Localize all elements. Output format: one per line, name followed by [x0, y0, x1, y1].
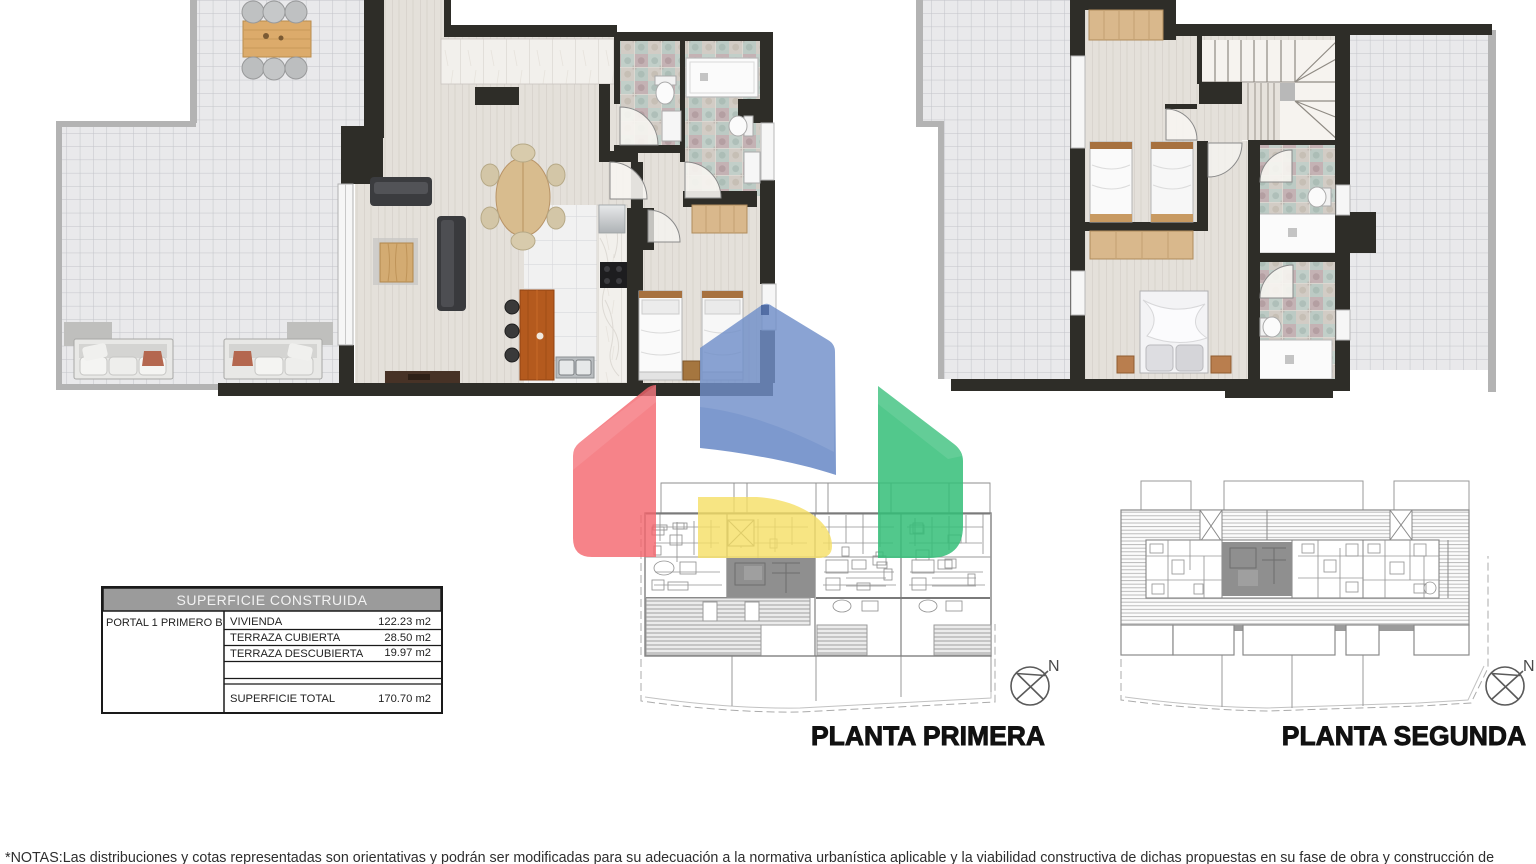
svg-text:SUPERFICIE CONSTRUIDA: SUPERFICIE CONSTRUIDA [177, 592, 368, 608]
svg-text:VIVIENDA: VIVIENDA [230, 616, 283, 628]
svg-text:PLANTA SEGUNDA: PLANTA SEGUNDA [1282, 721, 1526, 751]
svg-text:19.97 m2: 19.97 m2 [384, 647, 431, 659]
svg-text:PLANTA PRIMERA: PLANTA PRIMERA [811, 721, 1045, 751]
svg-text:TERRAZA DESCUBIERTA: TERRAZA DESCUBIERTA [230, 648, 364, 660]
svg-text:170.70 m2: 170.70 m2 [378, 693, 431, 705]
svg-text:*NOTAS:Las distribuciones y co: *NOTAS:Las distribuciones y cotas repres… [5, 850, 1494, 864]
svg-text:PORTAL 1 PRIMERO B: PORTAL 1 PRIMERO B [106, 617, 223, 629]
svg-text:SUPERFICIE TOTAL: SUPERFICIE TOTAL [230, 693, 335, 705]
svg-text:N: N [1048, 658, 1060, 675]
svg-text:28.50 m2: 28.50 m2 [384, 632, 431, 644]
svg-text:TERRAZA CUBIERTA: TERRAZA CUBIERTA [230, 632, 341, 644]
svg-text:N: N [1523, 658, 1535, 675]
svg-text:122.23 m2: 122.23 m2 [378, 616, 431, 628]
